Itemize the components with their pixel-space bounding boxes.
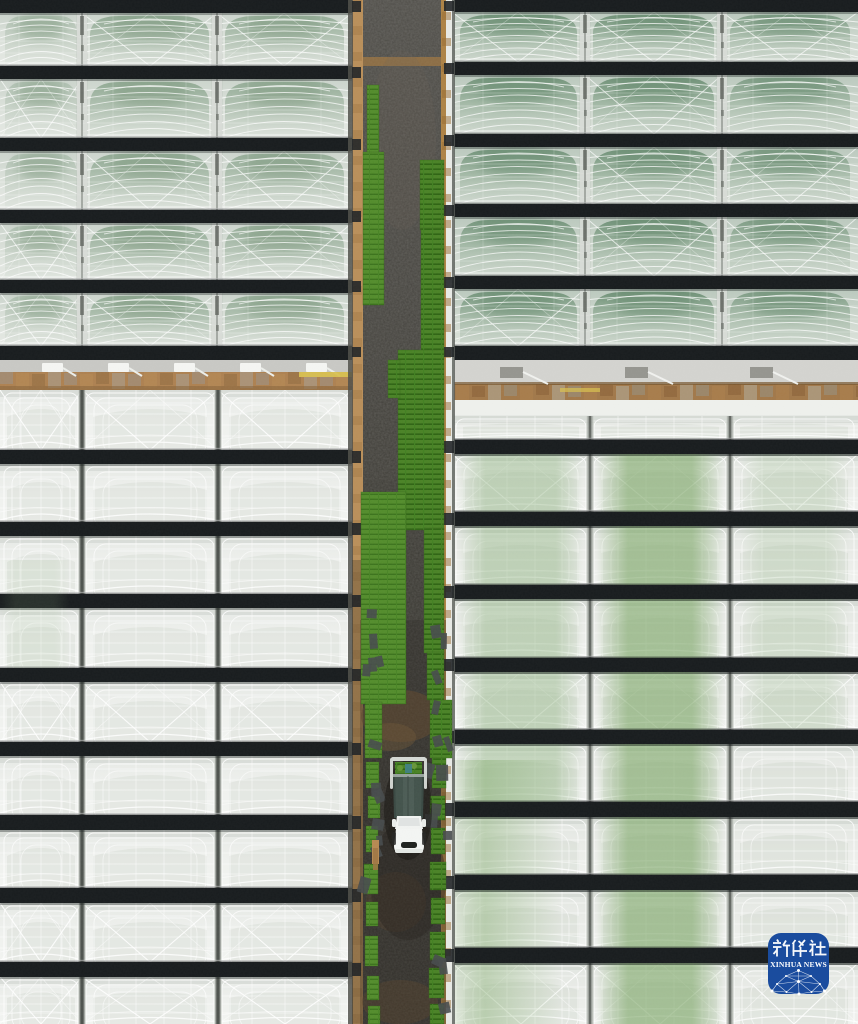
svg-text:XINHUA NEWS: XINHUA NEWS xyxy=(770,960,827,969)
